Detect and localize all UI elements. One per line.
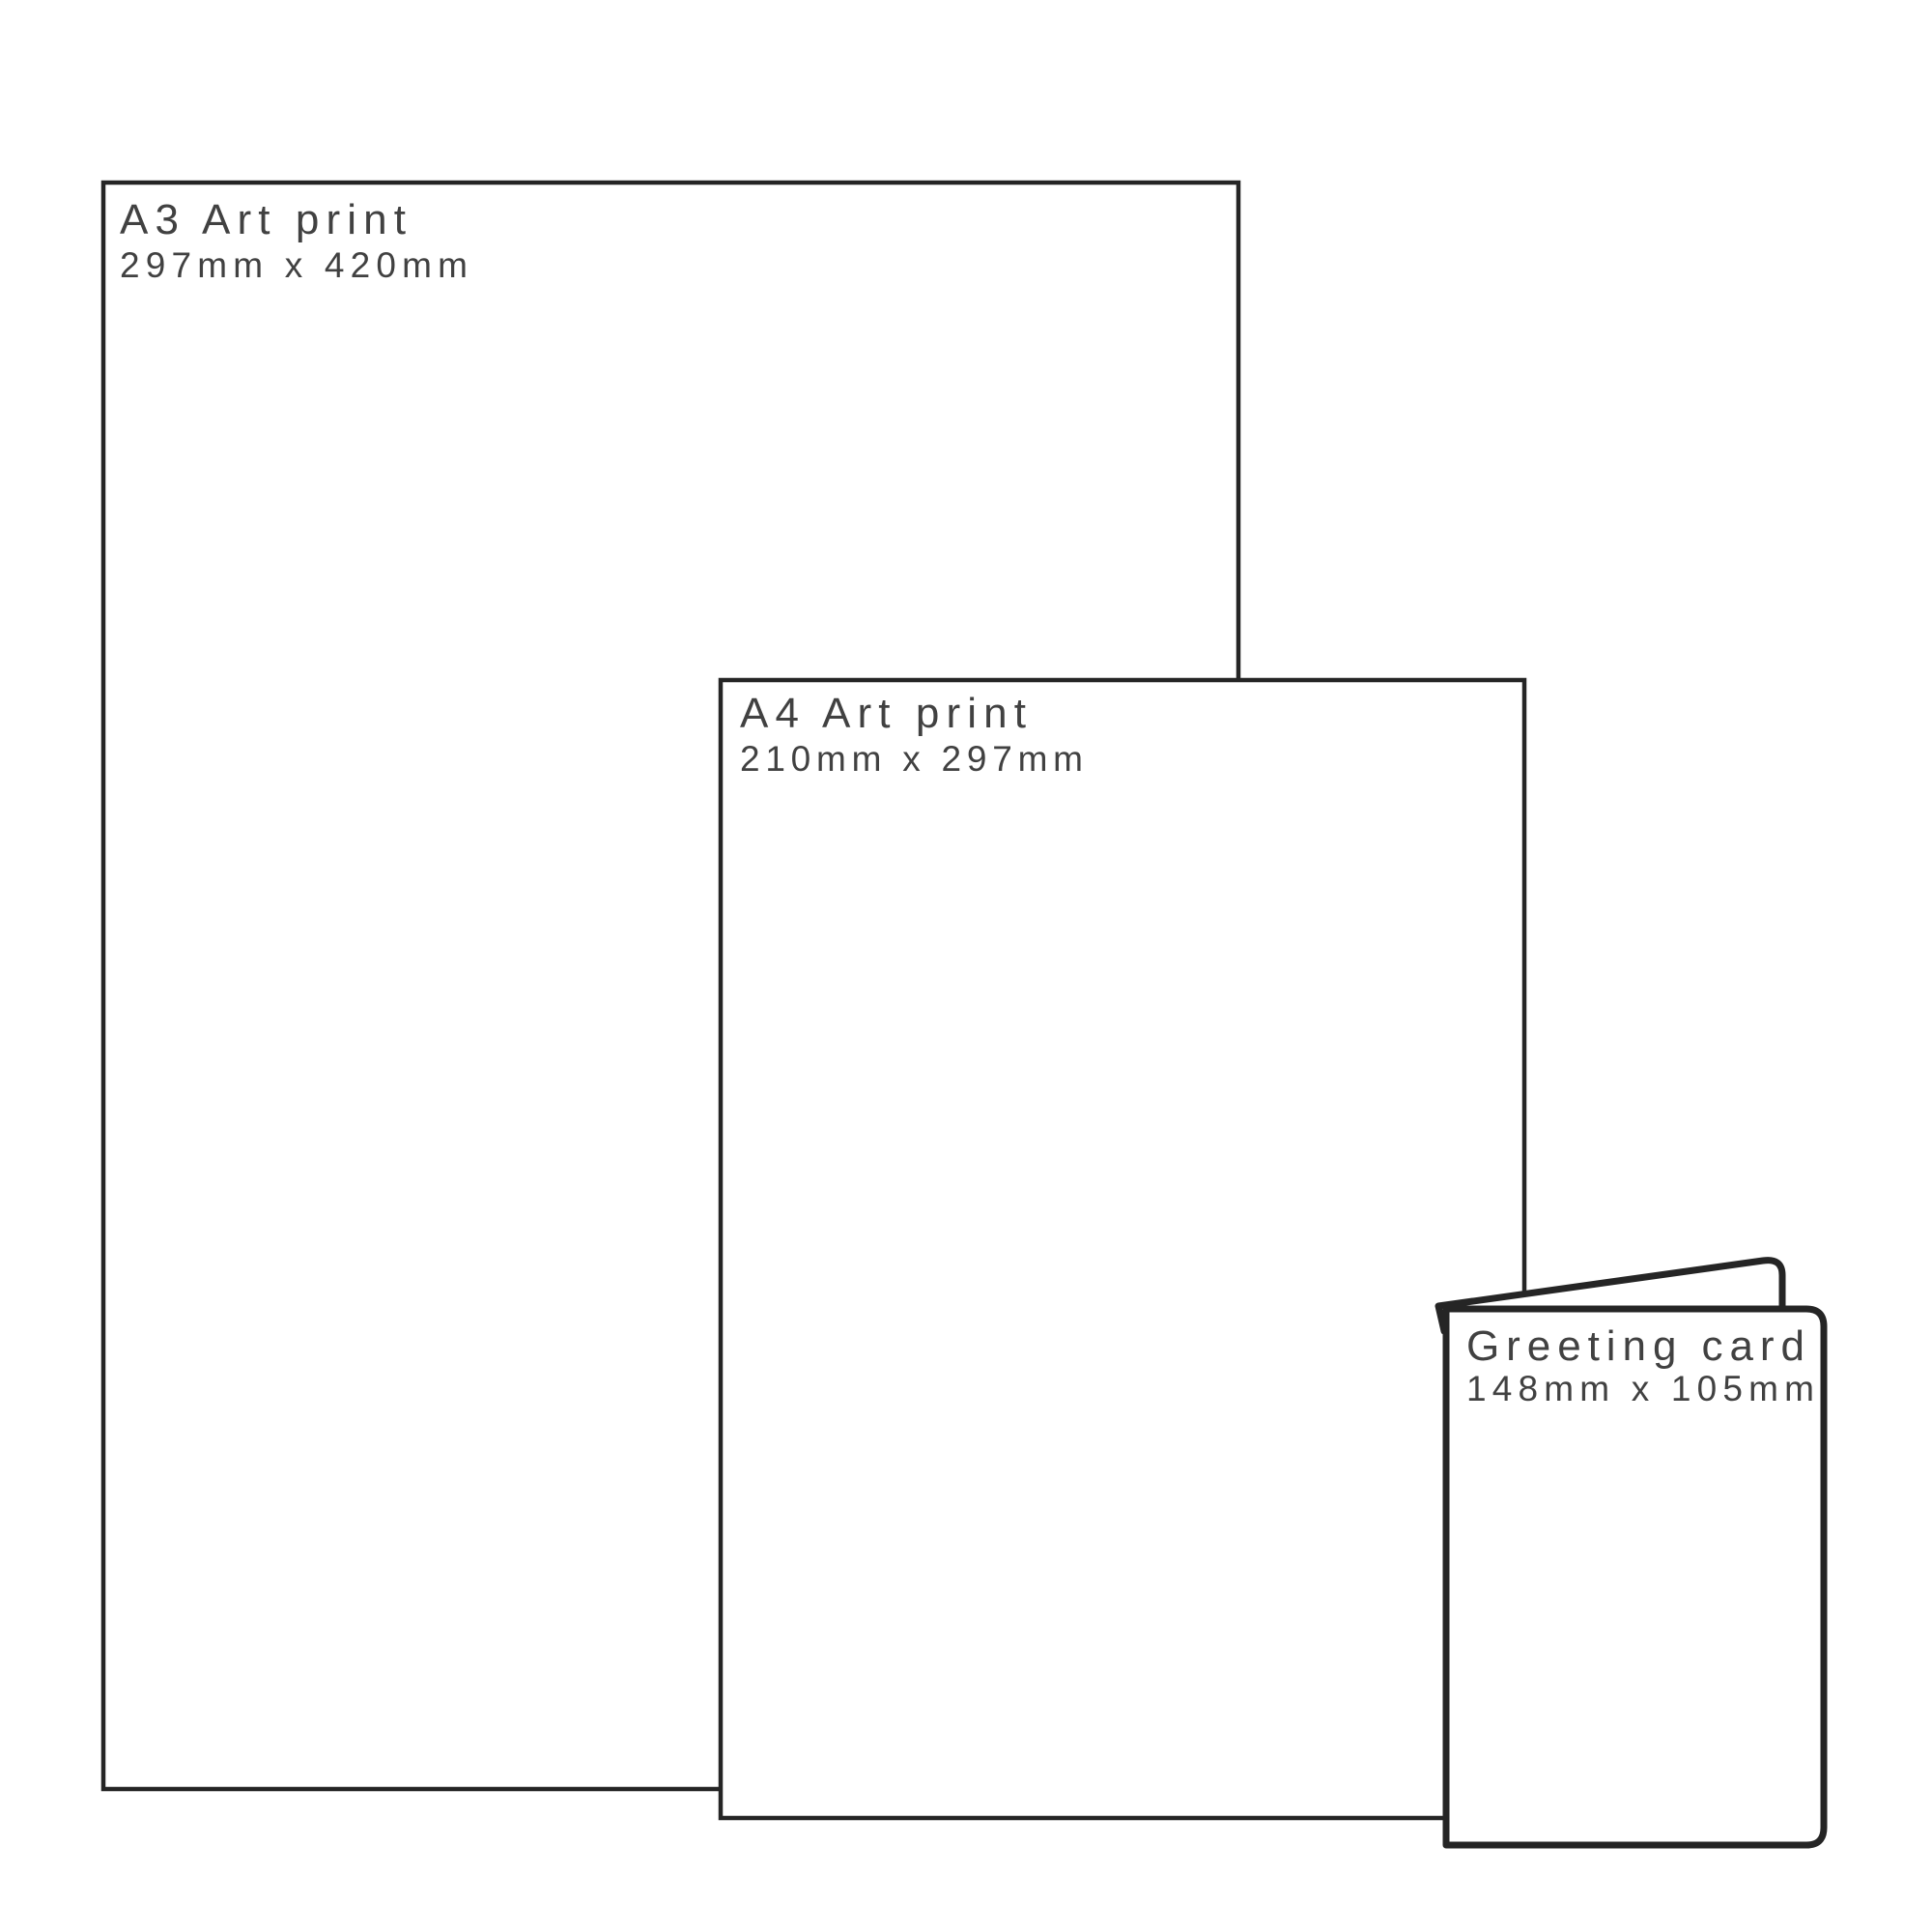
a4-print-label: A4 Art print [740, 690, 1026, 737]
size-comparison-diagram: A3 Art print 297mm x 420mm A4 Art print … [0, 0, 1932, 1932]
a4-print-outline [721, 680, 1524, 1818]
greeting-card-group: Greeting card 148mm x 105mm [1438, 1261, 1824, 1845]
a4-print-dimensions: 210mm x 297mm [740, 739, 1083, 779]
a3-print-dimensions: 297mm x 420mm [120, 245, 468, 285]
a3-print-label: A3 Art print [120, 196, 406, 243]
diagram-svg: A3 Art print 297mm x 420mm A4 Art print … [0, 0, 1932, 1932]
a4-print-group: A4 Art print 210mm x 297mm [721, 680, 1524, 1818]
greeting-card-dimensions: 148mm x 105mm [1466, 1369, 1814, 1408]
